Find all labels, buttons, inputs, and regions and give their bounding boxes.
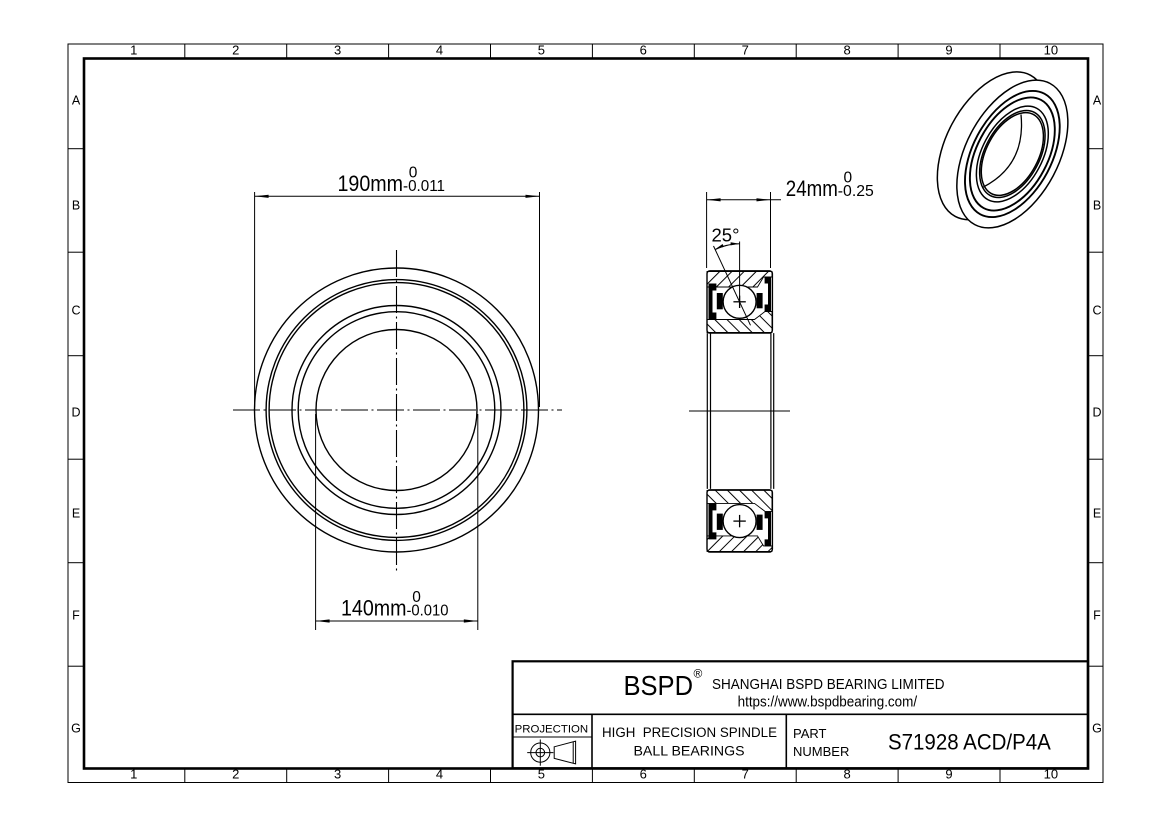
svg-text:BSPD: BSPD xyxy=(624,670,694,701)
svg-text:®: ® xyxy=(694,667,703,681)
svg-text:10: 10 xyxy=(1044,43,1058,58)
svg-text:190mm: 190mm xyxy=(338,171,404,196)
svg-text:3: 3 xyxy=(334,43,341,58)
svg-text:E: E xyxy=(72,507,80,521)
svg-text:BALL BEARINGS: BALL BEARINGS xyxy=(634,744,745,759)
svg-text:https://www.bspdbearing.com/: https://www.bspdbearing.com/ xyxy=(738,695,918,711)
svg-text:7: 7 xyxy=(742,43,749,58)
svg-text:0: 0 xyxy=(409,165,418,182)
svg-text:PART: PART xyxy=(793,726,827,741)
svg-text:HIGH PRECISION SPINDLE: HIGH PRECISION SPINDLE xyxy=(602,725,777,740)
svg-text:NUMBER: NUMBER xyxy=(793,744,849,759)
svg-text:F: F xyxy=(72,609,80,623)
svg-text:0: 0 xyxy=(412,589,421,606)
svg-text:4: 4 xyxy=(436,43,443,58)
svg-text:S71928 ACD/P4A: S71928 ACD/P4A xyxy=(888,730,1051,755)
svg-text:PROJECTION: PROJECTION xyxy=(515,724,589,736)
svg-text:G: G xyxy=(71,722,81,736)
svg-text:D: D xyxy=(71,406,80,420)
svg-text:SHANGHAI BSPD BEARING LIMITED: SHANGHAI BSPD BEARING LIMITED xyxy=(712,677,945,693)
svg-text:E: E xyxy=(1093,507,1101,521)
svg-text:24mm: 24mm xyxy=(786,176,838,201)
svg-text:1: 1 xyxy=(130,43,137,58)
svg-text:2: 2 xyxy=(232,767,239,782)
svg-text:25°: 25° xyxy=(712,225,740,246)
svg-text:140mm: 140mm xyxy=(341,596,407,621)
svg-text:3: 3 xyxy=(334,767,341,782)
svg-text:A: A xyxy=(72,94,81,108)
svg-text:6: 6 xyxy=(640,43,647,58)
svg-text:4: 4 xyxy=(436,767,443,782)
svg-text:5: 5 xyxy=(538,43,545,58)
svg-text:8: 8 xyxy=(843,43,850,58)
svg-text:C: C xyxy=(71,304,80,318)
svg-text:C: C xyxy=(1092,304,1101,318)
svg-text:2: 2 xyxy=(232,43,239,58)
svg-text:G: G xyxy=(1092,722,1102,736)
svg-text:F: F xyxy=(1093,609,1101,623)
svg-text:D: D xyxy=(1092,406,1101,420)
svg-text:1: 1 xyxy=(130,767,137,782)
svg-text:0: 0 xyxy=(844,170,853,187)
svg-text:A: A xyxy=(1093,94,1102,108)
svg-text:B: B xyxy=(72,199,80,213)
svg-text:9: 9 xyxy=(945,43,952,58)
svg-text:B: B xyxy=(1093,199,1101,213)
